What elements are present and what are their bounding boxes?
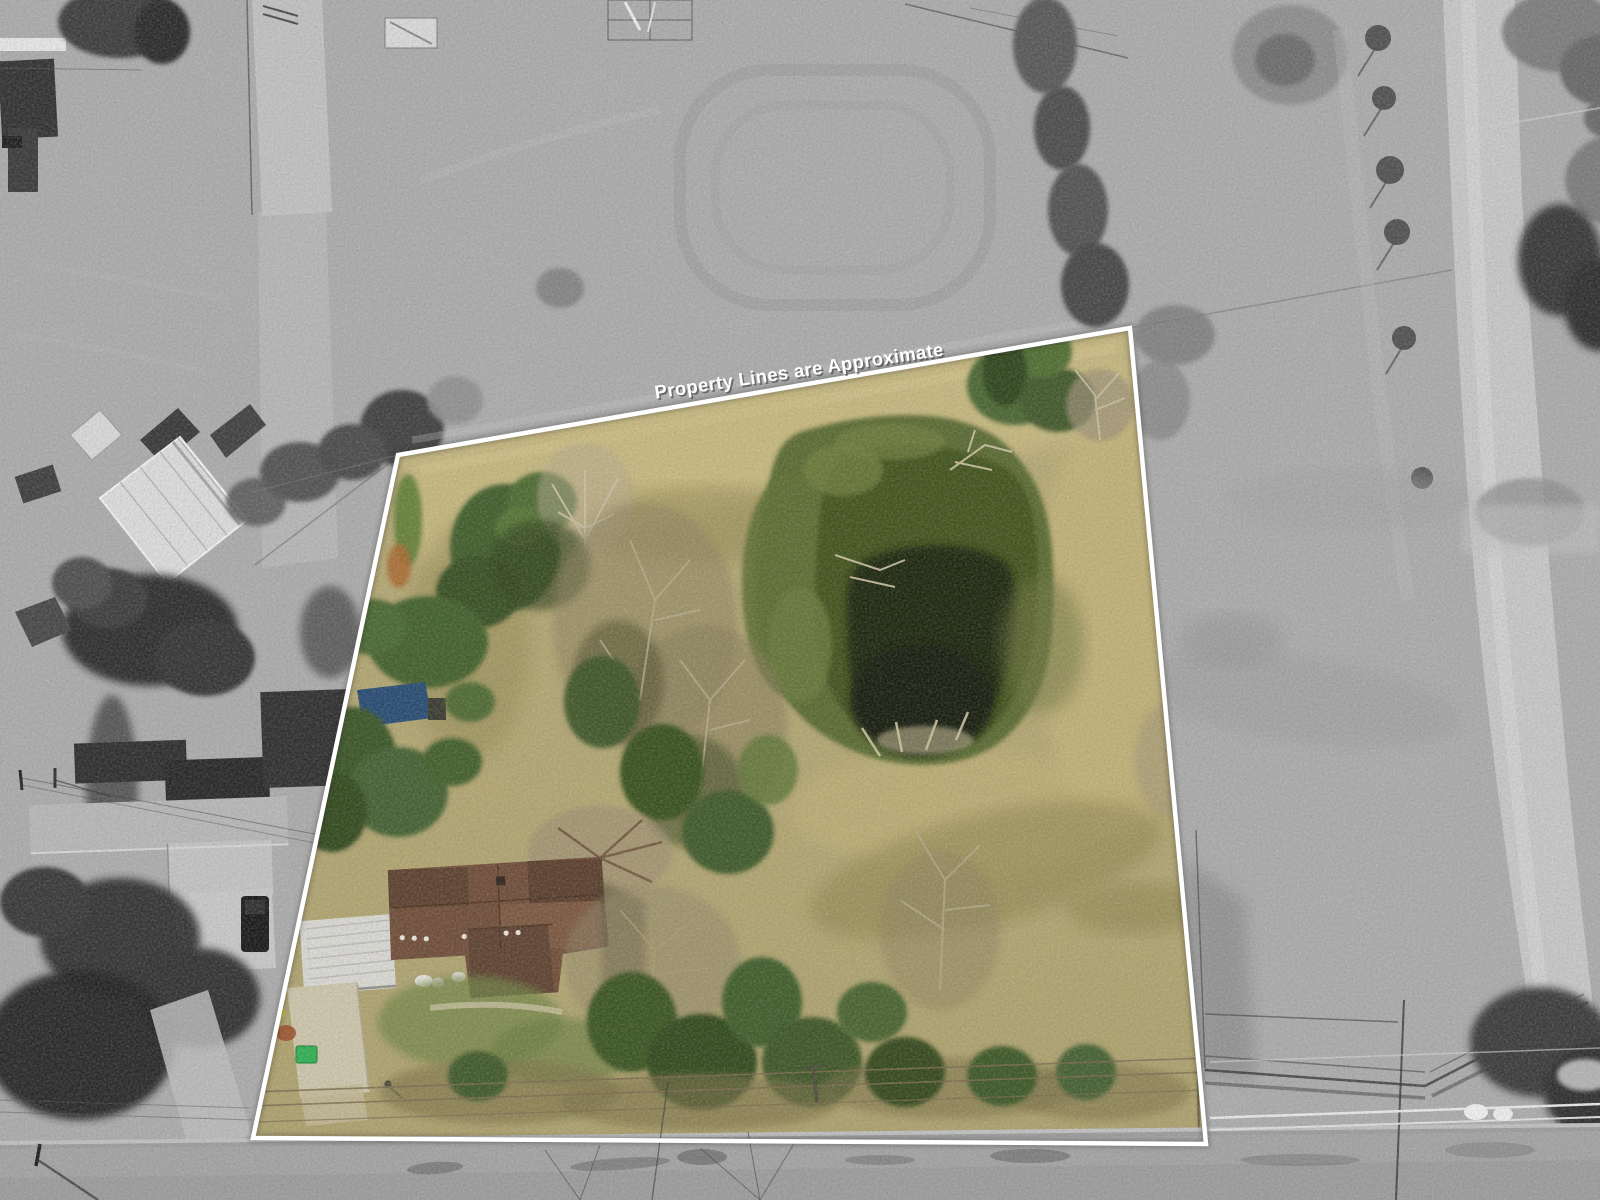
aerial-scene: Property Lines are Approximate Property … bbox=[0, 0, 1600, 1200]
aerial-property-photo: Property Lines are Approximate Property … bbox=[0, 0, 1600, 1200]
grain-light bbox=[0, 0, 1600, 1200]
